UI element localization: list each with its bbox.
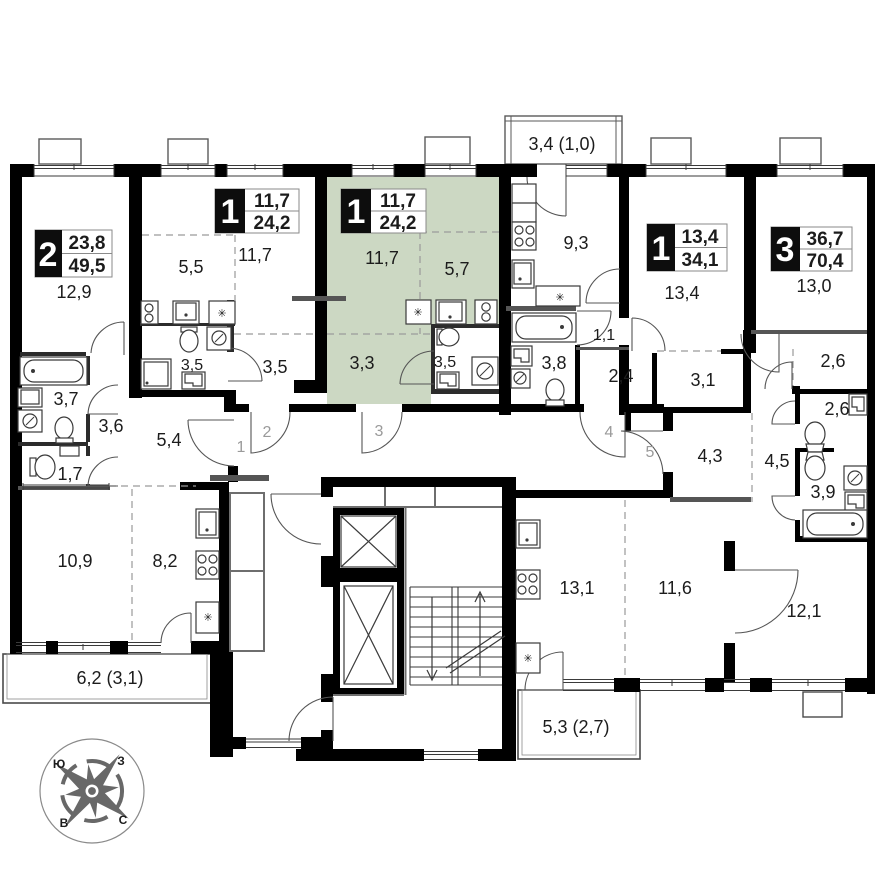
svg-text:1,7: 1,7 (57, 464, 82, 484)
svg-text:В: В (60, 816, 69, 830)
svg-text:2,6: 2,6 (824, 399, 849, 419)
svg-text:13,4: 13,4 (682, 227, 719, 248)
svg-text:4,5: 4,5 (764, 451, 789, 471)
svg-text:12,1: 12,1 (786, 601, 821, 621)
svg-text:13,4: 13,4 (664, 283, 699, 303)
svg-text:3,5: 3,5 (181, 357, 203, 374)
svg-text:✳: ✳ (523, 653, 532, 665)
svg-text:11,6: 11,6 (658, 578, 692, 598)
svg-text:3,4 (1,0): 3,4 (1,0) (528, 134, 595, 154)
svg-text:11,7: 11,7 (238, 245, 272, 265)
svg-text:С: С (119, 813, 128, 827)
svg-text:9,3: 9,3 (563, 233, 588, 253)
svg-text:З: З (117, 754, 125, 768)
svg-text:✳: ✳ (203, 612, 212, 624)
svg-text:23,8: 23,8 (69, 233, 106, 254)
svg-text:2: 2 (39, 236, 58, 274)
svg-text:24,2: 24,2 (254, 213, 291, 234)
svg-text:1: 1 (237, 439, 246, 456)
svg-text:1: 1 (652, 230, 671, 268)
svg-text:2,4: 2,4 (608, 366, 633, 386)
svg-text:10,9: 10,9 (57, 551, 92, 571)
svg-text:✳: ✳ (555, 292, 564, 304)
svg-text:5,5: 5,5 (178, 257, 203, 277)
svg-text:36,7: 36,7 (807, 229, 844, 250)
svg-text:13,1: 13,1 (559, 578, 594, 598)
svg-text:11,7: 11,7 (380, 191, 416, 212)
svg-text:11,7: 11,7 (254, 191, 290, 212)
svg-text:✳: ✳ (413, 307, 422, 319)
svg-text:2: 2 (263, 424, 272, 441)
svg-text:4: 4 (605, 424, 614, 441)
svg-text:1,1: 1,1 (593, 327, 615, 344)
svg-text:Ю: Ю (53, 757, 65, 771)
svg-text:49,5: 49,5 (69, 256, 106, 277)
svg-text:6,2 (3,1): 6,2 (3,1) (76, 668, 143, 688)
svg-text:4,3: 4,3 (697, 446, 722, 466)
svg-text:13,0: 13,0 (796, 276, 831, 296)
svg-text:3,6: 3,6 (98, 416, 123, 436)
svg-text:70,4: 70,4 (807, 251, 844, 272)
svg-text:5: 5 (646, 444, 655, 461)
svg-text:3: 3 (375, 423, 384, 440)
svg-text:5,3 (2,7): 5,3 (2,7) (542, 717, 609, 737)
svg-text:3,7: 3,7 (53, 389, 78, 409)
svg-text:3,1: 3,1 (690, 370, 715, 390)
svg-text:34,1: 34,1 (682, 250, 719, 271)
svg-text:3: 3 (776, 231, 795, 269)
svg-text:3,5: 3,5 (434, 354, 456, 371)
svg-text:3,3: 3,3 (349, 353, 374, 373)
svg-text:3,5: 3,5 (262, 357, 287, 377)
svg-text:2,6: 2,6 (820, 351, 845, 371)
svg-text:1: 1 (221, 193, 240, 231)
svg-text:1: 1 (347, 193, 366, 231)
svg-text:3,9: 3,9 (810, 482, 835, 502)
svg-text:5,4: 5,4 (156, 430, 181, 450)
svg-text:3,8: 3,8 (541, 353, 566, 373)
svg-text:11,7: 11,7 (365, 248, 399, 268)
svg-text:24,2: 24,2 (380, 213, 417, 234)
svg-text:12,9: 12,9 (56, 282, 91, 302)
svg-text:5,7: 5,7 (444, 259, 469, 279)
svg-text:8,2: 8,2 (152, 551, 177, 571)
svg-text:✳: ✳ (217, 308, 226, 320)
